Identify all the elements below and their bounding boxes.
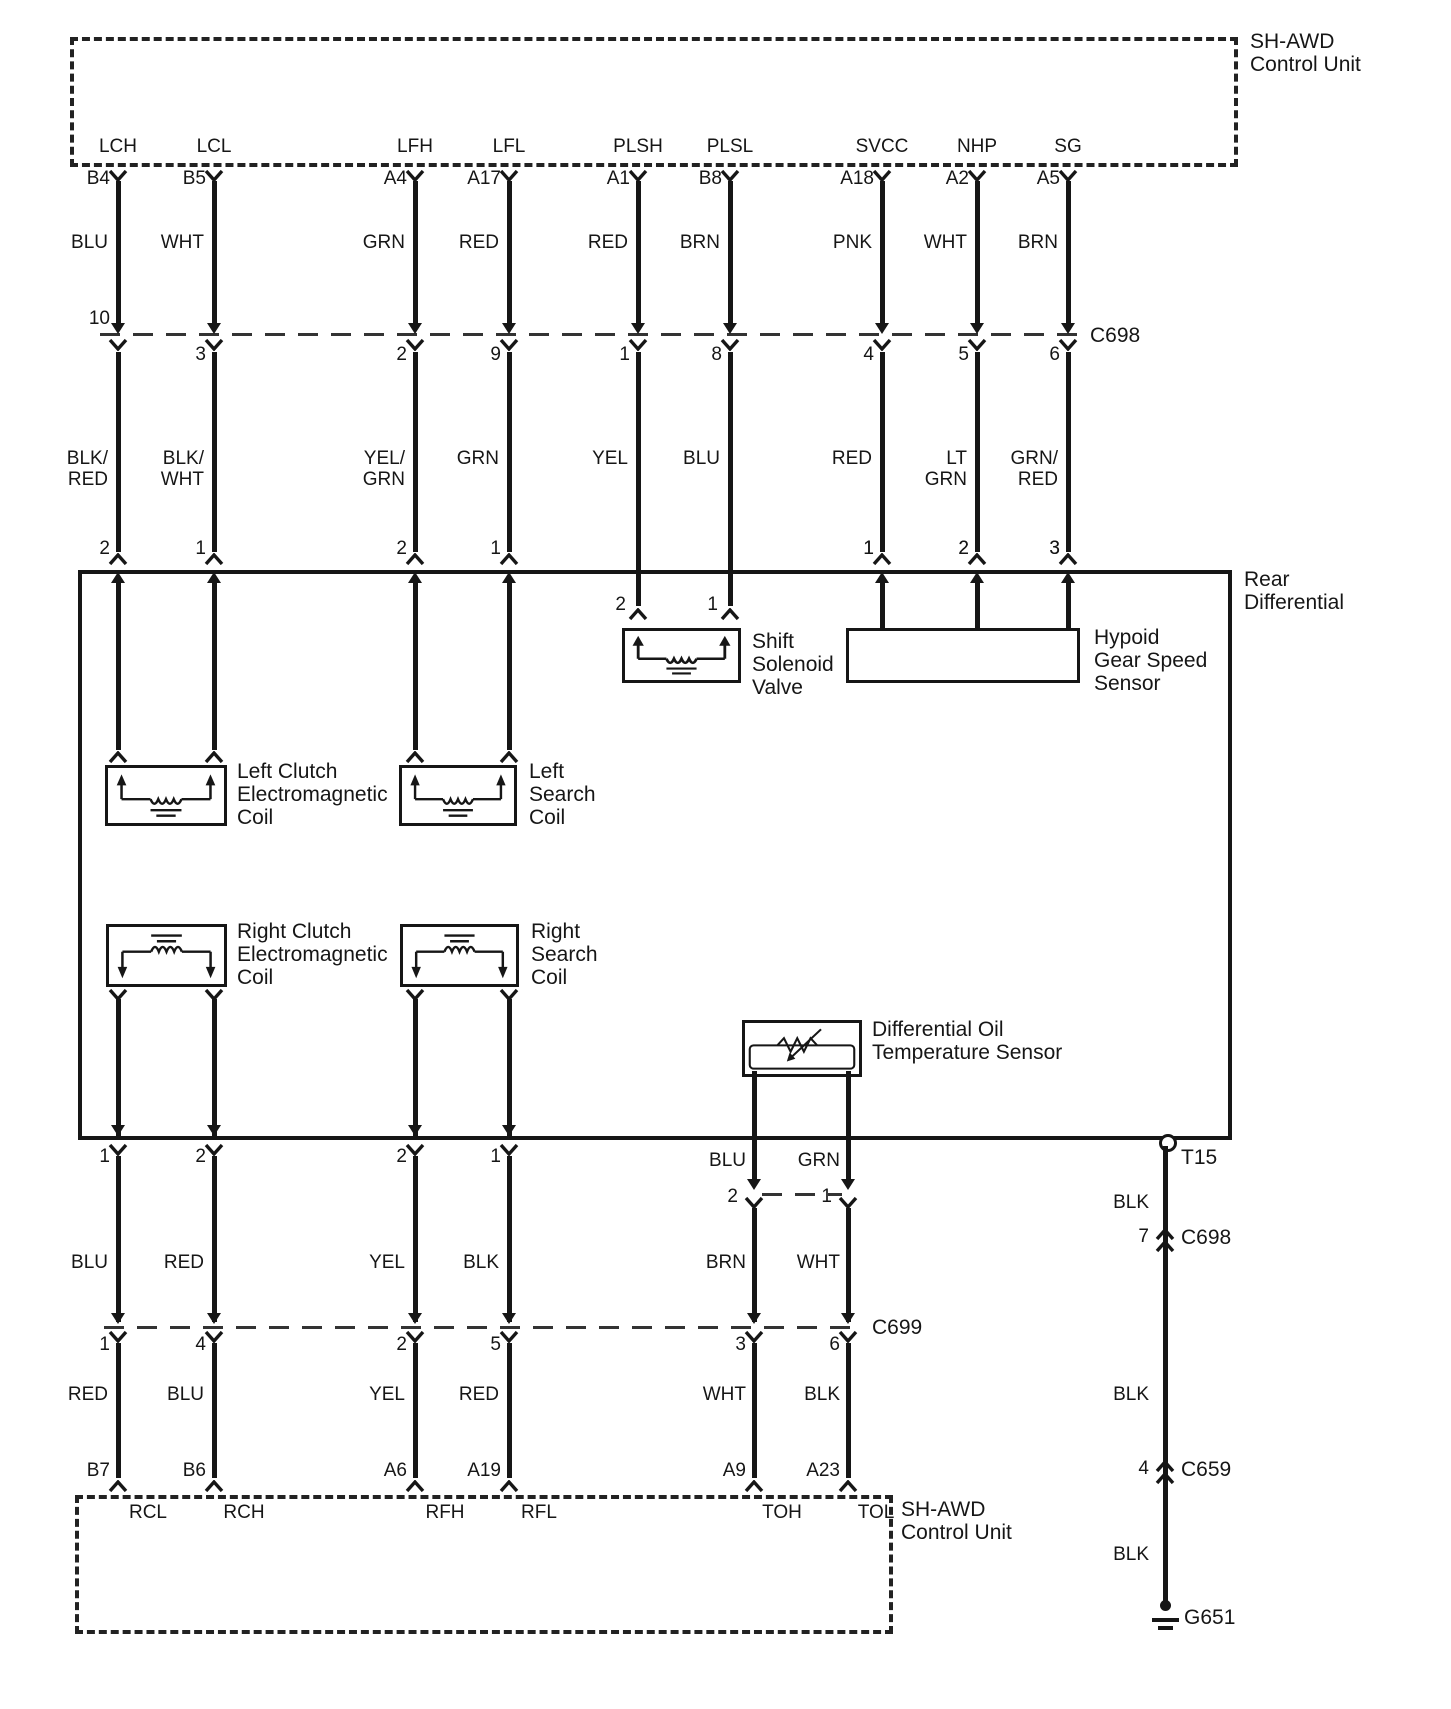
- oil-temp-sensor-box: [742, 1020, 862, 1077]
- port-label: TOL: [858, 1502, 895, 1523]
- connector-fork-icon: [872, 553, 892, 566]
- connector-fork-icon: [838, 1480, 858, 1493]
- c698-pin-label: 3: [195, 344, 206, 365]
- wire-color-label: WHT: [161, 232, 204, 253]
- connector-fork-icon: [108, 1143, 128, 1156]
- wire: [636, 181, 641, 323]
- wire: [413, 181, 418, 323]
- wire-color-label: WHT: [924, 232, 967, 253]
- port-label: SVCC: [856, 136, 909, 157]
- port-label: SG: [1054, 136, 1081, 157]
- port-label: LCL: [197, 136, 232, 157]
- thermistor-icon: [745, 1023, 859, 1074]
- wire-color-label: LT GRN: [925, 448, 967, 490]
- connector-fork-icon: [405, 751, 425, 764]
- port-label: PLSH: [613, 136, 663, 157]
- sensor-pin-label: 1: [821, 1186, 832, 1207]
- connector-fork-icon: [499, 1480, 519, 1493]
- wire: [846, 1071, 851, 1180]
- arrowhead-icon: [1060, 322, 1076, 335]
- left-search-coil-box: [399, 765, 517, 826]
- wire-color-label: BLK: [1113, 1384, 1149, 1405]
- wire: [413, 1156, 418, 1322]
- c699-pin-label: 4: [195, 1334, 206, 1355]
- wire: [1066, 352, 1071, 552]
- connector-fork-icon: [108, 1480, 128, 1493]
- wire: [413, 578, 418, 750]
- wire: [880, 578, 885, 628]
- connector-fork-icon: [1155, 1240, 1175, 1253]
- connector-label: C698: [1181, 1226, 1231, 1249]
- connector-fork-icon: [204, 1143, 224, 1156]
- hypoid-gear-speed-sensor-box: [846, 628, 1080, 683]
- pin-label: A19: [467, 1460, 501, 1481]
- arrowhead-icon: [206, 322, 222, 335]
- diff-pin-label: 1: [99, 1146, 110, 1167]
- ground-bar-icon: [1158, 1626, 1173, 1630]
- wire: [846, 1343, 851, 1478]
- wire-color-label: YEL/ GRN: [363, 448, 405, 490]
- wire-color-label: YEL: [369, 1384, 405, 1405]
- connector-fork-icon: [1058, 338, 1078, 351]
- connector-fork-icon: [108, 553, 128, 566]
- wire: [413, 1343, 418, 1478]
- wire-color-label: WHT: [703, 1384, 746, 1405]
- connector-fork-icon: [204, 553, 224, 566]
- wire-color-label: YEL: [592, 448, 628, 469]
- connector-fork-icon: [838, 1330, 858, 1343]
- connector-fork-icon: [628, 338, 648, 351]
- connector-line-c698: [100, 333, 1082, 336]
- wire-color-label: BLU: [683, 448, 720, 469]
- wire-color-label: PNK: [833, 232, 872, 253]
- label-oil-temp-sensor: Differential Oil Temperature Sensor: [872, 1018, 1062, 1064]
- sensor-pin-label: 2: [727, 1186, 738, 1207]
- arrowhead-icon: [407, 1124, 423, 1137]
- connector-fork-icon: [499, 1330, 519, 1343]
- wire-color-label: BLU: [71, 1252, 108, 1273]
- pin-label: A17: [467, 168, 501, 189]
- wire: [116, 578, 121, 750]
- pin-label: A1: [607, 168, 630, 189]
- wire: [752, 1343, 757, 1478]
- shift-solenoid-valve-box: [622, 628, 741, 683]
- hypoid-pin-label: 3: [1049, 538, 1060, 559]
- wiring-diagram: SH-AWD Control Unit Rear Differential SH…: [0, 0, 1451, 1709]
- wire: [212, 352, 217, 552]
- wire: [413, 999, 418, 1136]
- wire: [880, 352, 885, 552]
- wire: [116, 181, 121, 323]
- connector-fork-icon: [872, 338, 892, 351]
- connector-fork-icon: [204, 1330, 224, 1343]
- wire-color-label: GRN: [798, 1150, 840, 1171]
- arrowhead-icon: [874, 322, 890, 335]
- pin-label: B7: [87, 1460, 110, 1481]
- wire-color-label: RED: [459, 1384, 499, 1405]
- wire: [752, 1208, 757, 1322]
- connector-fork-icon: [108, 1330, 128, 1343]
- connector-fork-icon: [405, 1330, 425, 1343]
- wire: [507, 1156, 512, 1322]
- c659-pin-label: 4: [1138, 1458, 1149, 1479]
- wire-color-label: RED: [164, 1252, 204, 1273]
- port-label: NHP: [957, 136, 997, 157]
- connector-fork-icon: [720, 338, 740, 351]
- label-hypoid-gear-speed-sensor: Hypoid Gear Speed Sensor: [1094, 626, 1207, 695]
- wire-color-label: RED: [68, 1384, 108, 1405]
- wire-color-label: BRN: [680, 232, 720, 253]
- port-label: TOH: [762, 1502, 802, 1523]
- pin-label: B5: [183, 168, 206, 189]
- connector-fork-icon: [499, 1143, 519, 1156]
- label-right-clutch-coil: Right Clutch Electromagnetic Coil: [237, 920, 388, 989]
- connector-fork-icon: [967, 553, 987, 566]
- arrowhead-icon: [969, 322, 985, 335]
- wire: [975, 352, 980, 552]
- diff-pin-label: 2: [396, 1146, 407, 1167]
- title-top-control-unit: SH-AWD Control Unit: [1250, 30, 1361, 76]
- arrowhead-icon: [746, 1312, 762, 1325]
- label-connector-c698-top: C698: [1090, 324, 1140, 347]
- wire: [507, 1343, 512, 1478]
- c698-pin-label: 10: [89, 308, 110, 329]
- pin-label: A6: [384, 1460, 407, 1481]
- solenoid-pin-label: 2: [615, 594, 626, 615]
- solenoid-coil-icon: [625, 631, 738, 680]
- hypoid-pin-label: 2: [958, 538, 969, 559]
- connector-fork-icon: [204, 751, 224, 764]
- hypoid-pin-label: 1: [863, 538, 874, 559]
- label-t15: T15: [1181, 1146, 1217, 1169]
- wire: [116, 1156, 121, 1322]
- arrowhead-icon: [206, 1124, 222, 1137]
- connector-fork-icon: [967, 338, 987, 351]
- coil-icon: [403, 927, 516, 984]
- connector-fork-icon: [720, 608, 740, 621]
- label-shift-solenoid-valve: Shift Solenoid Valve: [752, 630, 834, 699]
- port-label: RCL: [129, 1502, 167, 1523]
- coil-icon: [108, 768, 224, 823]
- port-label: RCH: [223, 1502, 264, 1523]
- connector-fork-icon: [108, 751, 128, 764]
- wire-color-label: BLU: [709, 1150, 746, 1171]
- right-search-coil-box: [400, 924, 519, 987]
- port-label: PLSL: [707, 136, 753, 157]
- arrowhead-icon: [840, 1178, 856, 1191]
- wire-color-label: GRN: [457, 448, 499, 469]
- arrowhead-icon: [407, 322, 423, 335]
- c698-pin-label: 5: [958, 344, 969, 365]
- wire: [728, 181, 733, 323]
- wire: [507, 181, 512, 323]
- solenoid-pin-label: 1: [707, 594, 718, 615]
- c699-pin-label: 5: [490, 1334, 501, 1355]
- c698-pin-label: 2: [396, 344, 407, 365]
- wire: [507, 352, 512, 552]
- arrowhead-icon: [110, 1312, 126, 1325]
- left-clutch-coil-box: [105, 765, 227, 826]
- pin-label: A4: [384, 168, 407, 189]
- label-left-clutch-coil: Left Clutch Electromagnetic Coil: [237, 760, 388, 829]
- arrowhead-icon: [840, 1312, 856, 1325]
- port-label: RFH: [425, 1502, 464, 1523]
- ground-bar-icon: [1152, 1618, 1179, 1622]
- pin-label: A23: [806, 1460, 840, 1481]
- wire-color-label: RED: [459, 232, 499, 253]
- wire-color-label: BRN: [1018, 232, 1058, 253]
- connector-fork-icon: [1155, 1472, 1175, 1485]
- c698-pin-label: 8: [711, 344, 722, 365]
- wire: [413, 352, 418, 552]
- diff-pin-label: 1: [490, 1146, 501, 1167]
- connector-fork-icon: [744, 1480, 764, 1493]
- connector-fork-icon: [499, 553, 519, 566]
- connector-fork-icon: [204, 338, 224, 351]
- label-right-search-coil: Right Search Coil: [531, 920, 598, 989]
- pin-label: B6: [183, 1460, 206, 1481]
- connector-fork-icon: [405, 553, 425, 566]
- connector-fork-icon: [744, 1330, 764, 1343]
- wire: [212, 578, 217, 750]
- wire: [212, 999, 217, 1136]
- wire-color-label: BLK: [1113, 1544, 1149, 1565]
- diff-pin-label: 2: [195, 1146, 206, 1167]
- connector-fork-icon: [405, 1480, 425, 1493]
- arrowhead-icon: [722, 322, 738, 335]
- wire: [846, 1208, 851, 1322]
- connector-fork-icon: [204, 1480, 224, 1493]
- port-label: LCH: [99, 136, 137, 157]
- wire: [507, 999, 512, 1136]
- right-clutch-coil-box: [106, 924, 227, 987]
- arrowhead-icon: [110, 322, 126, 335]
- wire: [212, 181, 217, 323]
- wire-color-label: GRN/ RED: [1011, 448, 1059, 490]
- pin-label: A5: [1037, 168, 1060, 189]
- label-left-search-coil: Left Search Coil: [529, 760, 596, 829]
- c698-pin-label: 6: [1049, 344, 1060, 365]
- wire-color-label: BLK/ WHT: [161, 448, 204, 490]
- c699-pin-label: 3: [735, 1334, 746, 1355]
- c698-pin-label: 1: [619, 344, 630, 365]
- arrowhead-icon: [206, 1312, 222, 1325]
- arrowhead-icon: [630, 322, 646, 335]
- pin-label: A9: [723, 1460, 746, 1481]
- wire-color-label: BLK: [1113, 1192, 1149, 1213]
- wire: [636, 352, 641, 606]
- wire: [880, 181, 885, 323]
- arrowhead-icon: [110, 1124, 126, 1137]
- connector-fork-icon: [499, 338, 519, 351]
- wire: [1066, 181, 1071, 323]
- arrowhead-icon: [501, 1124, 517, 1137]
- wire: [1163, 1146, 1168, 1602]
- wire: [728, 352, 733, 606]
- connector-fork-icon: [628, 608, 648, 621]
- port-label: LFH: [397, 136, 433, 157]
- wire-color-label: YEL: [369, 1252, 405, 1273]
- wire: [752, 1071, 757, 1180]
- arrowhead-icon: [407, 1312, 423, 1325]
- wire-color-label: RED: [832, 448, 872, 469]
- connector-fork-icon: [405, 1143, 425, 1156]
- wire-color-label: BLU: [71, 232, 108, 253]
- pin-label: B8: [699, 168, 722, 189]
- wire-color-label: BLU: [167, 1384, 204, 1405]
- pin-label: A2: [946, 168, 969, 189]
- wire-color-label: BLK: [804, 1384, 840, 1405]
- wire: [975, 578, 980, 628]
- wire: [975, 181, 980, 323]
- label-rear-differential: Rear Differential: [1244, 568, 1344, 614]
- port-label: LFL: [493, 136, 526, 157]
- connector-line-c699: [104, 1326, 862, 1329]
- pin-label: A18: [840, 168, 874, 189]
- connector-fork-icon: [108, 338, 128, 351]
- c698-pin-label: 4: [863, 344, 874, 365]
- title-bottom-control-unit: SH-AWD Control Unit: [901, 1498, 1012, 1544]
- wire: [116, 352, 121, 552]
- coil-icon: [402, 768, 514, 823]
- c699-pin-label: 1: [99, 1334, 110, 1355]
- wire-color-label: BLK: [463, 1252, 499, 1273]
- connector-fork-icon: [1058, 553, 1078, 566]
- wire-color-label: BLK/ RED: [67, 448, 108, 490]
- wire-color-label: BRN: [706, 1252, 746, 1273]
- wire-color-label: GRN: [363, 232, 405, 253]
- wire: [116, 1343, 121, 1478]
- wire-color-label: WHT: [797, 1252, 840, 1273]
- pin-label: B4: [87, 168, 110, 189]
- c699-pin-label: 2: [396, 1334, 407, 1355]
- connector-fork-icon: [405, 338, 425, 351]
- c698-pin-label: 7: [1138, 1226, 1149, 1247]
- coil-icon: [109, 927, 224, 984]
- c699-pin-label: 6: [829, 1334, 840, 1355]
- port-label: RFL: [521, 1502, 557, 1523]
- arrowhead-icon: [501, 322, 517, 335]
- connector-fork-icon: [499, 751, 519, 764]
- wire: [1066, 578, 1071, 628]
- wire-color-label: RED: [588, 232, 628, 253]
- label-g651: G651: [1184, 1606, 1235, 1629]
- wire: [116, 999, 121, 1136]
- wire: [212, 1156, 217, 1322]
- c698-pin-label: 9: [490, 344, 501, 365]
- arrowhead-icon: [501, 1312, 517, 1325]
- wire: [507, 578, 512, 750]
- wire: [212, 1343, 217, 1478]
- connector-label: C659: [1181, 1458, 1231, 1481]
- label-connector-c699: C699: [872, 1316, 922, 1339]
- arrowhead-icon: [746, 1178, 762, 1191]
